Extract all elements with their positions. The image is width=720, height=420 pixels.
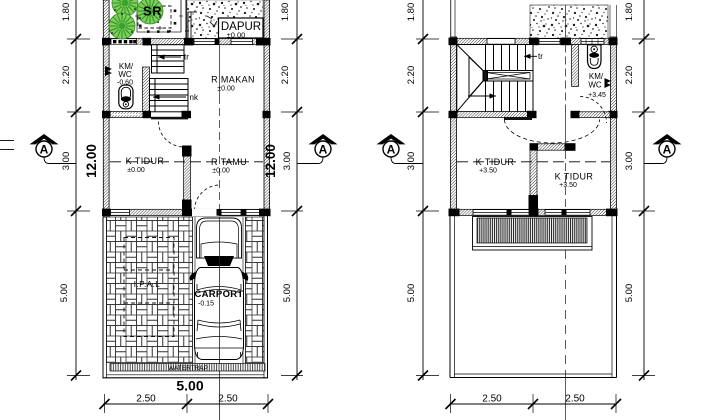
svg-text:nk: nk <box>190 93 199 102</box>
svg-text:2.20: 2.20 <box>61 66 72 85</box>
svg-text:5.00: 5.00 <box>59 284 70 303</box>
svg-text:2.20: 2.20 <box>624 66 635 85</box>
svg-text:1.80: 1.80 <box>624 3 635 22</box>
svg-text:1.80: 1.80 <box>280 3 291 22</box>
svg-text:3.00: 3.00 <box>624 152 635 171</box>
svg-text:tr: tr <box>538 52 543 61</box>
svg-text:WC: WC <box>588 81 602 90</box>
svg-text:CARPORT: CARPORT <box>194 289 243 300</box>
svg-text:5.00: 5.00 <box>176 378 203 394</box>
svg-text:SR: SR <box>143 4 162 19</box>
svg-text:WC: WC <box>118 70 132 79</box>
svg-text:2.50: 2.50 <box>136 394 156 405</box>
svg-text:K TIDUR: K TIDUR <box>555 172 594 182</box>
svg-text:R TAMU: R TAMU <box>211 157 247 167</box>
svg-text:5.00: 5.00 <box>282 284 293 303</box>
svg-text:12.00: 12.00 <box>84 144 99 178</box>
svg-text:±0.00: ±0.00 <box>212 168 230 175</box>
svg-text:+3.50: +3.50 <box>479 168 497 175</box>
svg-text:±0.00: ±0.00 <box>127 167 145 174</box>
svg-text:K TIDUR: K TIDUR <box>476 157 515 167</box>
svg-text:1.80: 1.80 <box>61 3 72 22</box>
svg-text:WATERTRAP: WATERTRAP <box>168 365 208 372</box>
svg-text:12.00: 12.00 <box>263 144 278 178</box>
svg-text:-0.15: -0.15 <box>198 301 214 308</box>
svg-text:2.50: 2.50 <box>565 394 585 405</box>
svg-text:tr: tr <box>184 53 189 62</box>
svg-text:5.00: 5.00 <box>406 284 417 303</box>
svg-text:5.00: 5.00 <box>624 284 635 303</box>
svg-text:2.20: 2.20 <box>406 66 417 85</box>
svg-text:1.80: 1.80 <box>406 3 417 22</box>
svg-text:R MAKAN: R MAKAN <box>211 75 255 85</box>
svg-text:3.00: 3.00 <box>282 152 293 171</box>
svg-text:2.50: 2.50 <box>218 394 238 405</box>
svg-text:2.50: 2.50 <box>482 394 502 405</box>
svg-text:+3.45: +3.45 <box>588 92 606 99</box>
svg-text:I.P.A.L: I.P.A.L <box>134 280 161 289</box>
svg-text:2.20: 2.20 <box>280 66 291 85</box>
svg-text:3.00: 3.00 <box>61 152 72 171</box>
svg-text:±0.00: ±0.00 <box>217 86 235 93</box>
svg-text:K TIDUR: K TIDUR <box>126 156 165 166</box>
svg-text:+3.50: +3.50 <box>559 182 577 189</box>
svg-text:3.00: 3.00 <box>406 152 417 171</box>
